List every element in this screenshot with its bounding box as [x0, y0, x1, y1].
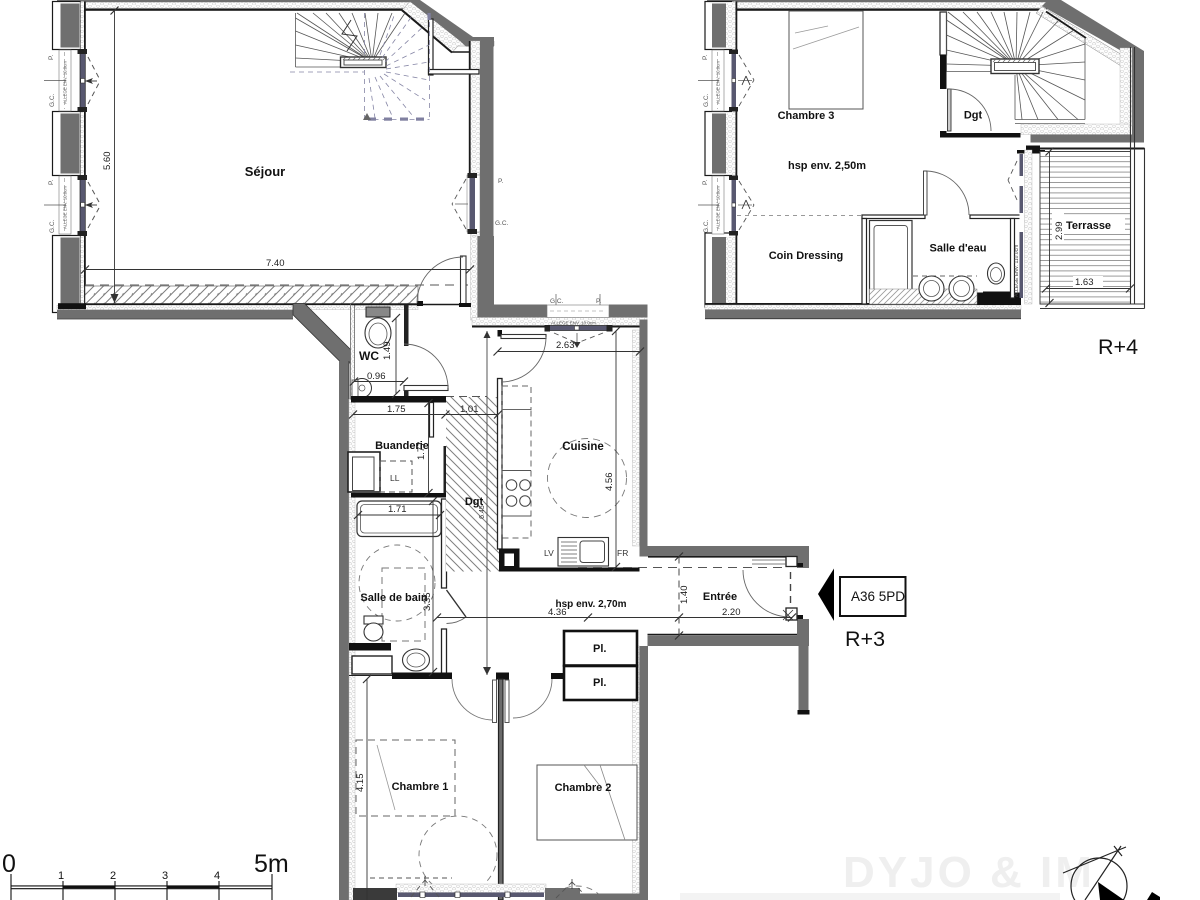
svg-text:1.75: 1.75 — [387, 404, 406, 415]
svg-text:LV: LV — [544, 548, 554, 558]
svg-text:P.: P. — [596, 298, 601, 305]
svg-text:Cuisine: Cuisine — [562, 441, 604, 453]
svg-text:P.: P. — [48, 180, 55, 185]
svg-text:G.C.: G.C. — [550, 298, 564, 305]
svg-text:2.20: 2.20 — [722, 607, 741, 618]
svg-text:ALLEGE ENV. 10.0cm: ALLEGE ENV. 10.0cm — [551, 321, 596, 326]
svg-text:1.77: 1.77 — [416, 442, 427, 461]
svg-text:G.C.: G.C. — [49, 93, 56, 107]
svg-text:P.: P. — [702, 180, 709, 185]
svg-text:WC: WC — [359, 349, 379, 363]
svg-text:ALLEGE ENV. 10.0cm: ALLEGE ENV. 10.0cm — [63, 186, 68, 229]
svg-text:0.96: 0.96 — [367, 371, 386, 382]
svg-text:1.01: 1.01 — [460, 404, 479, 415]
svg-text:2.63: 2.63 — [556, 340, 575, 351]
svg-text:G.C.: G.C. — [495, 220, 509, 227]
svg-text:LL: LL — [390, 473, 400, 483]
svg-text:Coin Dressing: Coin Dressing — [769, 250, 844, 262]
svg-text:Terrasse: Terrasse — [1066, 220, 1111, 232]
svg-text:Séjour: Séjour — [245, 164, 285, 179]
svg-text:4: 4 — [214, 870, 220, 882]
svg-text:Pl.: Pl. — [593, 677, 606, 689]
svg-text:2: 2 — [110, 870, 116, 882]
svg-text:Entrée: Entrée — [703, 591, 737, 603]
svg-text:Dgt: Dgt — [964, 110, 983, 122]
svg-text:4.36: 4.36 — [548, 607, 567, 618]
svg-text:G.C.: G.C. — [49, 219, 56, 233]
svg-text:ALLEGE ENV. 10.0cm: ALLEGE ENV. 10.0cm — [63, 61, 68, 104]
svg-text:P.: P. — [48, 55, 55, 60]
svg-text:5m: 5m — [254, 850, 289, 878]
svg-text:G.C.: G.C. — [703, 219, 710, 233]
svg-text:3.35: 3.35 — [422, 593, 433, 612]
svg-text:1.40: 1.40 — [679, 586, 690, 605]
svg-text:P.: P. — [702, 55, 709, 60]
svg-text:Chambre 3: Chambre 3 — [778, 110, 835, 122]
svg-text:1.63: 1.63 — [1075, 277, 1094, 288]
svg-text:1.71: 1.71 — [388, 504, 407, 515]
svg-text:0: 0 — [2, 850, 16, 878]
svg-text:3: 3 — [162, 870, 168, 882]
svg-text:FR: FR — [617, 548, 628, 558]
svg-text:Chambre 2: Chambre 2 — [555, 782, 612, 794]
svg-text:1: 1 — [58, 870, 64, 882]
svg-text:5.60: 5.60 — [102, 152, 113, 171]
svg-text:4.56: 4.56 — [604, 473, 615, 492]
svg-text:A36 5PD: A36 5PD — [851, 589, 905, 604]
svg-text:7.40: 7.40 — [266, 258, 285, 269]
svg-text:2.99: 2.99 — [1054, 222, 1065, 241]
svg-text:Chambre 1: Chambre 1 — [392, 781, 449, 793]
svg-text:1.49: 1.49 — [382, 342, 393, 361]
svg-text:4.15: 4.15 — [355, 774, 366, 793]
svg-text:R+4: R+4 — [1098, 335, 1138, 359]
svg-text:ALLEGE ENV. 10.0cm: ALLEGE ENV. 10.0cm — [716, 61, 721, 104]
svg-text:Salle de bain: Salle de bain — [360, 592, 428, 604]
svg-text:R+3: R+3 — [845, 627, 885, 651]
svg-text:DYJO & IM: DYJO & IM — [843, 848, 1095, 897]
svg-text:ALLEGE ENV. 110.0cm: ALLEGE ENV. 110.0cm — [1014, 245, 1020, 297]
svg-text:6.45: 6.45 — [479, 505, 486, 519]
svg-text:P.: P. — [498, 178, 503, 185]
svg-text:Pl.: Pl. — [593, 643, 606, 655]
svg-text:G.C.: G.C. — [703, 93, 710, 107]
svg-text:Salle d'eau: Salle d'eau — [929, 243, 986, 255]
svg-text:ALLEGE ENV. 10.0cm: ALLEGE ENV. 10.0cm — [716, 186, 721, 229]
svg-text:hsp env. 2,50m: hsp env. 2,50m — [788, 160, 866, 172]
